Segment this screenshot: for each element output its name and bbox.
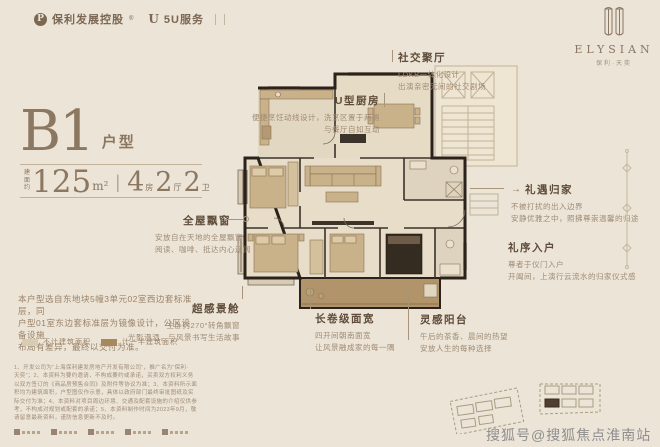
area-value: 125 bbox=[32, 169, 91, 195]
arrow-icon: → bbox=[511, 184, 521, 195]
callout-line: 出演亲密无间的社交剧场 bbox=[398, 81, 528, 93]
leader-line bbox=[408, 292, 409, 340]
room-count: 4 bbox=[127, 171, 144, 195]
callout-social-hall: 社交聚厅 LDKB一体化设计 出演亲密无间的社交剧场 bbox=[398, 50, 528, 93]
callout-line: 开阖间，上演行云流水的归家仪式感 bbox=[508, 271, 654, 283]
callout-line: 主卧约270°转角飘窗 bbox=[120, 320, 240, 332]
disclaimer-line: 考，不构成对规划或配套的承诺；5、本资料制作时间为2023年9月，敬 bbox=[14, 406, 212, 414]
project-logo: ELYSIAN 保利·天奕 bbox=[570, 6, 658, 67]
poly-logo-icon: P bbox=[34, 13, 47, 26]
callout-title: 灵感阳台 bbox=[420, 312, 535, 327]
unit-spec-row: 建面约 125 m² | 4 房 2 厅 2 卫 bbox=[24, 167, 212, 195]
callout-line: LDKB一体化设计 bbox=[398, 69, 528, 81]
project-subtitle: 保利·天奕 bbox=[570, 58, 658, 67]
certification-badges bbox=[14, 429, 190, 435]
floorplan-poster: P 保利发展控股 ® U 5U服务 ELYSIAN 保利·天奕 B1 户型 建面… bbox=[0, 0, 660, 447]
callout-line: 阅读、咖啡、抵达内心辽阔 bbox=[155, 244, 273, 256]
legend-swatch-light bbox=[22, 339, 38, 346]
area-prefix: 建面约 bbox=[24, 170, 30, 192]
callout-title: 长卷级面宽 bbox=[315, 311, 430, 326]
developer-name: 保利发展控股 bbox=[52, 11, 124, 27]
callout-line: 安放人生的每种选择 bbox=[420, 343, 535, 355]
hall-label: 厅 bbox=[173, 182, 181, 193]
callout-line: 光影漫洒，与风景书写生活故事 bbox=[120, 332, 240, 344]
service-name: 5U服务 bbox=[164, 11, 204, 27]
project-wordmark: ELYSIAN bbox=[570, 43, 658, 56]
column-ornament bbox=[618, 148, 636, 270]
callout-wide-frontage: 长卷级面宽 四开间朝南面宽 让风景融成家的每一隅 bbox=[315, 311, 430, 354]
disclaimer-line: 请留意最新资料，谨防信息更新不及时。 bbox=[14, 414, 212, 422]
badge bbox=[14, 429, 42, 435]
leader-line bbox=[242, 286, 243, 299]
service-tagline-marks bbox=[215, 14, 230, 25]
leader-line bbox=[384, 93, 385, 107]
callout-bay-windows: 全屋飘窗 安放自在天地的全屋飘窗 阅读、咖啡、抵达内心辽阔 bbox=[155, 213, 273, 256]
bath-label: 卫 bbox=[202, 182, 210, 193]
callout-line: 便捷烹饪动线设计，洗烹区置于两侧 bbox=[238, 112, 380, 124]
leader-dot bbox=[243, 216, 249, 222]
callout-balcony: 灵感阳台 午后的茶香、晨间的热望 安放人生的每种选择 bbox=[420, 312, 535, 355]
callout-line: 让风景融成家的每一隅 bbox=[315, 342, 430, 354]
legend-label: 不计建筑面积 bbox=[43, 337, 91, 347]
unit-title-block: B1 户型 建面约 125 m² | 4 房 2 厅 2 卫 bbox=[20, 104, 205, 160]
registered-mark: ® bbox=[129, 16, 133, 22]
legal-disclaimer: 1、开发公司为“上海保利建发房地产开发有限公司”，推广名为“保利· 天奕”；2、… bbox=[14, 364, 212, 423]
disclaimer-line: 以双方签订的《商品房预售合同》及附件等协议为准；3、本资料所示面 bbox=[14, 381, 212, 389]
badge bbox=[125, 429, 153, 435]
callout-title: 礼遇归家 bbox=[525, 182, 573, 197]
5u-logo-icon: U bbox=[148, 12, 158, 26]
callout-title: 全屋飘窗 bbox=[155, 213, 273, 228]
disclaimer-line: 1、开发公司为“上海保利建发房地产开发有限公司”，推广名为“保利· bbox=[14, 364, 212, 372]
callout-line: 午后的茶香、晨间的热望 bbox=[420, 331, 535, 343]
legend-swatch-dark bbox=[101, 339, 117, 346]
elysian-pillars-icon bbox=[599, 6, 629, 40]
disclaimer-line: 天奕”；2、本资料为要约邀请，不构成要约或承诺，买卖双方权利义务 bbox=[14, 372, 212, 380]
unit-type-label: 户型 bbox=[102, 131, 136, 152]
divider-line bbox=[20, 197, 202, 198]
callout-title: 超感景舱 bbox=[120, 301, 240, 316]
disclaimer-line: 积均为建筑面积，户型图仅作示意，具体以政府部门最终审批图纸及实 bbox=[14, 389, 212, 397]
callout-master-suite: 超感景舱 主卧约270°转角飘窗 光影漫洒，与风景书写生活故事 bbox=[120, 301, 240, 344]
leader-line bbox=[470, 188, 504, 189]
badge bbox=[88, 429, 116, 435]
spec-divider: | bbox=[115, 172, 120, 193]
area-unit: m² bbox=[92, 179, 108, 193]
callout-title: U型厨房 bbox=[238, 93, 380, 108]
bath-count: 2 bbox=[183, 171, 200, 195]
badge bbox=[162, 429, 190, 435]
legend-item: 不计建筑面积 bbox=[22, 337, 91, 347]
leader-line bbox=[392, 50, 393, 62]
leader-line bbox=[310, 288, 311, 309]
leader-line bbox=[224, 219, 244, 220]
callout-line: 与餐厅自如互动 bbox=[238, 124, 380, 136]
disclaimer-line: 际交付为准；4、本资料对项目周边环境、交通及配套设施的介绍仅供参 bbox=[14, 398, 212, 406]
badge bbox=[51, 429, 79, 435]
unit-code: B1 bbox=[20, 104, 93, 160]
brand-row: P 保利发展控股 ® U 5U服务 bbox=[34, 11, 230, 27]
callout-u-kitchen: U型厨房 便捷烹饪动线设计，洗烹区置于两侧 与餐厅自如互动 bbox=[238, 93, 380, 136]
sohu-watermark: 搜狐号@搜狐焦点淮南站 bbox=[486, 425, 651, 445]
callout-line: 四开间朝南面宽 bbox=[315, 330, 430, 342]
hall-count: 2 bbox=[155, 171, 172, 195]
room-label: 房 bbox=[145, 182, 153, 193]
callout-line: 安放自在天地的全屋飘窗 bbox=[155, 232, 273, 244]
callout-title: 社交聚厅 bbox=[398, 50, 528, 65]
